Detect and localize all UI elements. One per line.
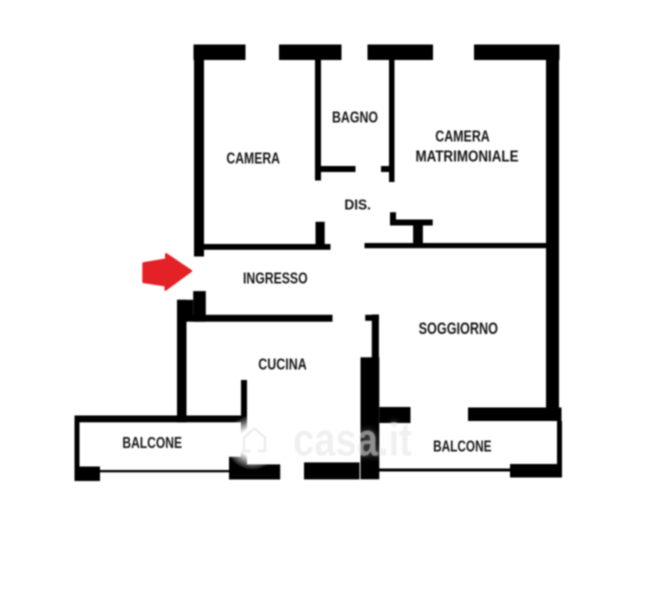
svg-text:BAGNO: BAGNO	[332, 109, 378, 126]
svg-text:casa.it: casa.it	[293, 414, 412, 466]
svg-text:CUCINA: CUCINA	[258, 357, 307, 374]
svg-text:BALCONE: BALCONE	[122, 435, 182, 452]
svg-text:MATRIMONIALE: MATRIMONIALE	[415, 149, 518, 166]
svg-text:CAMERA: CAMERA	[226, 151, 280, 168]
svg-text:CAMERA: CAMERA	[435, 129, 490, 146]
svg-text:SOGGIORNO: SOGGIORNO	[419, 319, 498, 338]
svg-text:BALCONE: BALCONE	[433, 439, 491, 456]
svg-text:DIS.: DIS.	[344, 197, 371, 214]
svg-text:INGRESSO: INGRESSO	[243, 270, 308, 287]
